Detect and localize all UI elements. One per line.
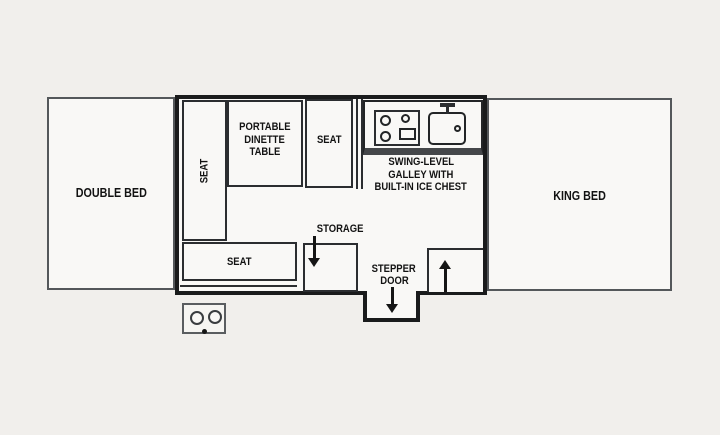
sink-faucet-icon [446, 106, 449, 114]
stepper-door-label: STEPPER DOOR [354, 264, 434, 287]
storage-label: STORAGE [290, 223, 390, 235]
dinette-seat-label: SEAT [305, 134, 353, 146]
bench-back-line [180, 285, 297, 287]
stove-burner-icon [380, 115, 391, 126]
storage-compartment [303, 243, 358, 292]
stove-burner-icon [401, 114, 410, 123]
double-bed-label: DOUBLE BED [49, 186, 173, 200]
stove-burner-icon [380, 131, 391, 142]
galley-label: SWING-LEVEL GALLEY WITH BUILT-IN ICE CHE… [351, 156, 491, 194]
exterior-burner-icon [190, 311, 204, 325]
sink-drain-icon [454, 125, 461, 132]
entry-up-arrow-icon [444, 267, 447, 292]
exterior-burner-icon [208, 310, 222, 324]
dinette-table-label: PORTABLE DINETTE TABLE [227, 121, 303, 159]
exterior-stove-knob-icon [202, 329, 207, 334]
storage-down-arrow-icon [308, 258, 320, 267]
camper-floorplan: DOUBLE BED KING BED SEAT PORTABLE DINETT… [0, 0, 720, 435]
side-seat-label: SEAT [182, 100, 227, 241]
entry-area [427, 248, 483, 292]
step-down-arrow-icon [386, 304, 398, 313]
bench-seat-label: SEAT [182, 256, 297, 268]
king-bed-label: KING BED [490, 189, 670, 203]
storage-down-arrow-icon [313, 236, 316, 260]
stove-drawer-icon [399, 128, 416, 140]
